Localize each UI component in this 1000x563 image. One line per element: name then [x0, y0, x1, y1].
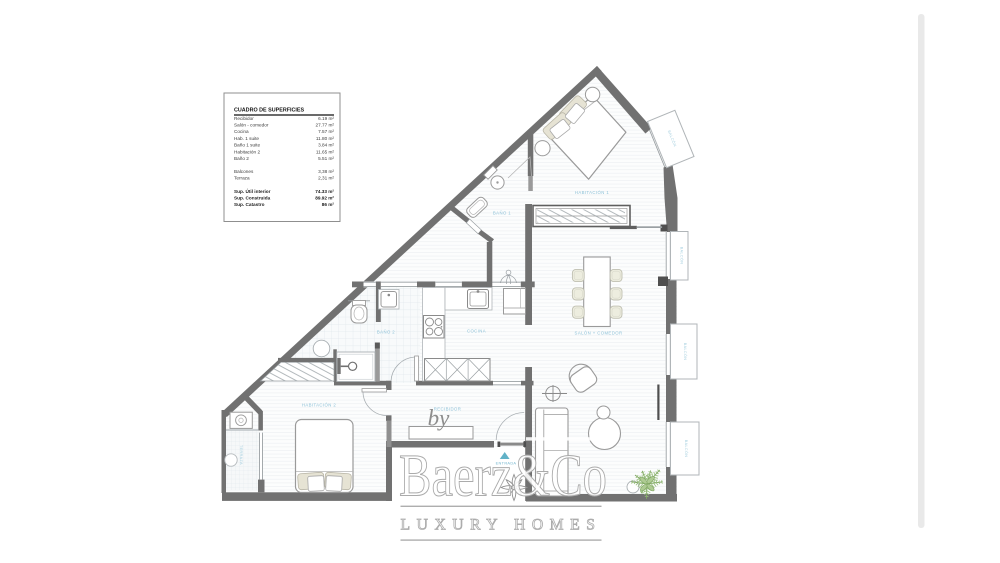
svg-text:Habitación 2: Habitación 2 [234, 149, 260, 154]
svg-text:5.51 m²: 5.51 m² [318, 156, 334, 161]
svg-text:HABITACIÓN 2: HABITACIÓN 2 [302, 403, 337, 408]
svg-text:Salón - comedor: Salón - comedor [234, 123, 269, 128]
svg-text:Sup. Útil interior: Sup. Útil interior [234, 188, 271, 194]
svg-text:Sup. Construida: Sup. Construida [234, 196, 271, 201]
svg-text:89.92 m²: 89.92 m² [315, 196, 334, 201]
svg-text:Sup. Catastro: Sup. Catastro [234, 202, 265, 207]
svg-text:by: by [428, 406, 451, 431]
svg-text:Baño 2: Baño 2 [234, 156, 249, 161]
svg-text:7.57 m²: 7.57 m² [318, 129, 334, 134]
svg-text:COCINA: COCINA [467, 329, 486, 334]
svg-text:Recibidor: Recibidor [234, 116, 254, 121]
svg-text:86 m²: 86 m² [322, 202, 335, 207]
svg-text:BALCÓN: BALCÓN [680, 247, 685, 265]
svg-text:HABITACIÓN 1: HABITACIÓN 1 [575, 190, 610, 195]
svg-text:Cocina: Cocina [234, 129, 249, 134]
svg-text:BALCÓN: BALCÓN [684, 440, 689, 458]
svg-text:BAÑO 1: BAÑO 1 [493, 211, 511, 216]
svg-text:Baerz&Co: Baerz&Co [399, 443, 607, 509]
svg-text:6.19 m²: 6.19 m² [318, 116, 334, 121]
svg-text:27.77 m²: 27.77 m² [316, 123, 335, 128]
svg-text:SALÓN + COMEDOR: SALÓN + COMEDOR [575, 331, 623, 336]
svg-text:BAÑO 2: BAÑO 2 [377, 330, 395, 335]
svg-text:Baño 1 suite: Baño 1 suite [234, 143, 260, 148]
svg-text:3,38 m²: 3,38 m² [318, 169, 334, 174]
svg-text:74.33 m²: 74.33 m² [315, 189, 334, 194]
svg-text:Balcones: Balcones [234, 169, 254, 174]
svg-text:BALCÓN: BALCÓN [683, 343, 688, 361]
svg-text:Terraza: Terraza [234, 176, 250, 181]
svg-text:CUADRO DE SUPERFICIES: CUADRO DE SUPERFICIES [234, 107, 304, 113]
svg-text:2,31 m²: 2,31 m² [318, 176, 334, 181]
svg-text:11.65 m²: 11.65 m² [316, 149, 335, 154]
svg-text:11.80 m²: 11.80 m² [316, 136, 335, 141]
svg-text:TERRAZA: TERRAZA [239, 445, 243, 465]
svg-text:3.84 m²: 3.84 m² [318, 143, 334, 148]
svg-text:Hab. 1 suite: Hab. 1 suite [234, 136, 259, 141]
svg-text:LUXURY HOMES: LUXURY HOMES [401, 517, 602, 534]
